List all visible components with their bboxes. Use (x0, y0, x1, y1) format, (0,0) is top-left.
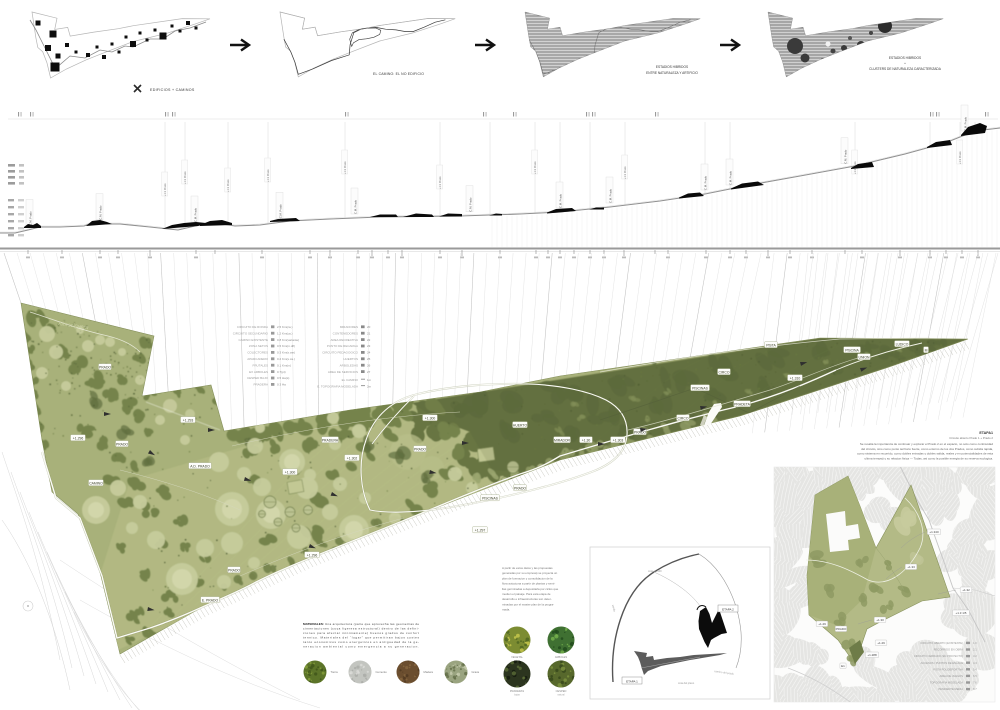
svg-text:+1.3 Prado: +1.3 Prado (183, 171, 187, 184)
svg-text:ZONA SETOS: ZONA SETOS (249, 344, 268, 348)
svg-text:+1.3 Prado: +1.3 Prado (533, 161, 537, 174)
svg-text:PRADO: PRADO (99, 365, 111, 369)
svg-text:ETAPA 2: ETAPA 2 (722, 608, 734, 612)
svg-text:C.M. Prado: C.M. Prado (559, 193, 563, 208)
svg-text:C.M. Prado: C.M. Prado (469, 197, 473, 212)
svg-text:PRADO: PRADO (116, 442, 128, 446)
svg-text:+1.297: +1.297 (475, 528, 486, 532)
svg-text:ACCESOS / PUNTOS DE ENLACE: ACCESOS / PUNTOS DE ENLACE (920, 661, 963, 665)
svg-text:+1.300: +1.300 (425, 416, 436, 420)
svg-text:22: 22 (367, 338, 371, 342)
svg-text:1.0: 1.0 (973, 641, 977, 645)
svg-text:CIRCO: CIRCO (678, 416, 689, 420)
svg-text:llas germinadas a depositarla: llas germinadas a depositarla por ciclos… (502, 587, 559, 591)
svg-text:C.M. Prado: C.M. Prado (729, 170, 733, 185)
svg-text:+1.29: +1.29 (877, 641, 885, 645)
svg-text:20: 20 (367, 325, 371, 329)
svg-text:PRADO: PRADO (836, 627, 847, 631)
svg-text:ARBOLEDAS: ARBOLEDAS (340, 363, 358, 367)
svg-text:E1: E1 (841, 664, 845, 668)
svg-text:7.6: 7.6 (973, 681, 977, 685)
svg-text:ultima terraza) y su relacion: ultima terraza) y su relacion fisica — T… (864, 456, 993, 460)
svg-text:PRADO: PRADO (634, 430, 646, 434)
svg-text:E. TOPOGRAFIA MODELADA: E. TOPOGRAFIA MODELADA (317, 385, 358, 389)
svg-text:Grava: Grava (472, 670, 480, 674)
svg-text:UNION: UNION (859, 355, 870, 359)
svg-text:26: 26 (367, 363, 371, 367)
svg-text:LUDICO: LUDICO (896, 342, 909, 346)
svg-text:1.2 Km(ca.): 1.2 Km(ca.) (277, 331, 293, 335)
svg-text:Tierra: Tierra (331, 670, 339, 674)
svg-text:COLECTORES: COLECTORES (247, 351, 268, 355)
svg-text:PRADERA: PRADERA (322, 438, 339, 442)
svg-text:MIRADOR: MIRADOR (554, 438, 571, 442)
svg-text:ESTADIOS HIBRIDOS: ESTADIOS HIBRIDOS (656, 65, 688, 69)
svg-text:Madera: Madera (424, 670, 434, 674)
svg-text:M: M (925, 348, 928, 352)
svg-text:+1.29: +1.29 (818, 622, 826, 626)
svg-text:+1.3 Prado: +1.3 Prado (163, 183, 167, 196)
svg-text:0.1 Km(m): 0.1 Km(m) (277, 363, 291, 367)
svg-text:A partir de estos datos y las: A partir de estos datos y las propuestas (502, 566, 553, 570)
svg-text:CESPED BAJO: CESPED BAJO (247, 376, 269, 380)
svg-text:mada.: mada. (502, 608, 510, 612)
svg-text:+1.293: +1.293 (183, 418, 194, 422)
svg-text:A.D. PRADO: A.D. PRADO (190, 464, 210, 468)
svg-text:+1.32: +1.32 (962, 588, 970, 592)
svg-text:C.M. Prado: C.M. Prado (704, 175, 708, 190)
svg-text:C.M. Prado: C.M. Prado (844, 149, 848, 164)
svg-text:CAMINO EXISTENTE: CAMINO EXISTENTE (238, 338, 268, 342)
svg-text:PISCINAS: PISCINAS (692, 386, 709, 390)
svg-text:CAMINO: CAMINO (89, 481, 103, 485)
svg-text:MATERIALES:: MATERIALES: (303, 622, 324, 626)
svg-text:RECORRIDO EN OBRA: RECORRIDO EN OBRA (934, 648, 963, 652)
svg-text:CIRCUITO PEDAGOGICO: CIRCUITO PEDAGOGICO (322, 351, 358, 355)
svg-text:ciones para afectar minimam: ciones para afectar minimamente) buenos … (303, 631, 419, 635)
svg-text:CIRCUITO ABIERTO (EXISTENTE): CIRCUITO ABIERTO (EXISTENTE) (920, 641, 963, 645)
svg-text:AREA RECREATIVA: AREA RECREATIVA (330, 338, 358, 342)
svg-text:6.5: 6.5 (973, 674, 977, 678)
svg-text:+1.30: +1.30 (876, 618, 884, 622)
svg-text:+1.3 Prado: +1.3 Prado (958, 151, 962, 164)
svg-text:bajas: bajas (514, 694, 521, 697)
svg-text:PISTA POLIDEPORTIVA: PISTA POLIDEPORTIVA (933, 667, 963, 671)
svg-text:ETAPA1: ETAPA1 (979, 431, 993, 435)
svg-text:CLUSTERS DE NATURALEZA CARACTE: CLUSTERS DE NATURALEZA CARACTERIZADA (869, 67, 942, 71)
svg-text:ENTRE NATURALEZA Y ARTIFICIO: ENTRE NATURALEZA Y ARTIFICIO (646, 71, 698, 75)
svg-text:+1.33: +1.33 (907, 565, 915, 569)
svg-text:+1.296: +1.296 (73, 436, 84, 440)
svg-text:tanto economicos como energ: tanto economicos como energeticos en ant… (303, 640, 419, 644)
svg-text:cimentaciones (cuya ligereza: cimentaciones (cuya ligereza estructural… (303, 627, 419, 631)
svg-text:EX ARBOLES: EX ARBOLES (249, 370, 268, 374)
svg-text:Se resalta la importancia de c: Se resalta la importancia de continuar y… (860, 442, 993, 446)
svg-text:+1.303: +1.303 (613, 438, 624, 442)
svg-text:0.3 Ha: 0.3 Ha (277, 383, 286, 387)
svg-text:3.2: 3.2 (973, 654, 977, 658)
svg-text:ESTADIOS HIBRIDOS: ESTADIOS HIBRIDOS (889, 56, 921, 60)
svg-text:CONTENEDORES: CONTENEDORES (333, 331, 358, 335)
svg-text:0.8 Km(variante): 0.8 Km(variante) (277, 338, 299, 342)
svg-text:EL CAMINO: EL NO EDIFICIO: EL CAMINO: EL NO EDIFICIO (373, 72, 424, 76)
svg-text:PENDIENTE MEDIA: PENDIENTE MEDIA (938, 687, 963, 691)
svg-text:+1.302: +1.302 (347, 456, 358, 460)
svg-text:minadas por el master plan de: minadas por el master plan de la progra- (502, 602, 554, 606)
svg-text:AREA DE SERVICIOS: AREA DE SERVICIOS (328, 370, 358, 374)
svg-text:flora autoctona a partir de pl: flora autoctona a partir de plantas y se… (502, 582, 555, 586)
svg-text:+1.3 Prado: +1.3 Prado (623, 166, 627, 179)
svg-text:+1.340: +1.340 (929, 530, 939, 534)
svg-text:FRUTALES: FRUTALES (253, 363, 268, 367)
svg-text:EL CAMINO: EL CAMINO (342, 378, 359, 382)
svg-text:PRADERA: PRADERA (253, 383, 268, 387)
svg-text:+1.30: +1.30 (582, 438, 591, 442)
svg-text:C.M. Prado: C.M. Prado (194, 207, 198, 222)
svg-text:PRADO: PRADO (514, 486, 526, 490)
svg-text:PISTA: PISTA (766, 343, 776, 347)
svg-text:+1.288: +1.288 (867, 653, 877, 657)
svg-text:0.2 Km(s.ca.): 0.2 Km(s.ca.) (277, 357, 295, 361)
svg-text:ARBOLES: ARBOLES (555, 655, 568, 659)
svg-text:como sistema en recorrido, co: como sistema en recorrido, como dobles e… (857, 452, 993, 456)
svg-text:21: 21 (367, 331, 371, 335)
svg-text:+1.3 Prado: +1.3 Prado (266, 169, 270, 182)
svg-text:1m: 1m (367, 378, 372, 382)
svg-text:medien el paisaje. Para esta e: medien el paisaje. Para esta etapa de (502, 592, 551, 596)
svg-text:cota +1.300: cota +1.300 (648, 569, 662, 573)
svg-text:PRADO: PRADO (414, 447, 426, 451)
svg-text:23: 23 (367, 344, 371, 348)
svg-text:2.1: 2.1 (973, 648, 977, 652)
svg-text:0.5 Ha(s): 0.5 Ha(s) (277, 376, 289, 380)
svg-text:HUERTO: HUERTO (513, 423, 528, 427)
svg-text:+1.300: +1.300 (285, 470, 296, 474)
svg-text:+1.310: +1.310 (790, 376, 801, 380)
svg-text:cota del plano: cota del plano (678, 681, 695, 685)
svg-text:2m: 2m (367, 385, 372, 389)
svg-text:0.3 Km(s.var): 0.3 Km(s.var) (277, 351, 295, 355)
svg-text:8.7: 8.7 (973, 687, 977, 691)
svg-text:CIRCUITO CERRADO (EN PROYECTO): CIRCUITO CERRADO (EN PROYECTO) (914, 654, 963, 658)
svg-text:MIRADORES: MIRADORES (340, 325, 358, 329)
svg-text:CIRCUITO SECUNDARIO: CIRCUITO SECUNDARIO (233, 331, 269, 335)
svg-text:desarrollo e infraestructuras: desarrollo e infraestructuras son deter- (502, 597, 552, 601)
svg-text:Cemento: Cemento (376, 670, 388, 674)
svg-text:+1.3 Prado: +1.3 Prado (343, 161, 347, 174)
svg-text:4.3: 4.3 (973, 661, 977, 665)
svg-text:Circuito abierto Prado 1 + Pra: Circuito abierto Prado 1 + Prado 2 (949, 436, 993, 440)
svg-text:generadas por su empresa) se p: generadas por su empresa) se proyecta un (502, 571, 558, 575)
svg-text:25: 25 (367, 357, 371, 361)
svg-text:C.M. Prado: C.M. Prado (279, 204, 283, 219)
svg-text:del circuito, sino como punto: del circuito, sino como punto territorio… (861, 447, 993, 451)
svg-text:PRADO: PRADO (228, 568, 240, 572)
svg-text:2.5 Km(ca.): 2.5 Km(ca.) (277, 325, 293, 329)
svg-text:E. PRADO: E. PRADO (202, 598, 219, 602)
svg-text:PRADETA: PRADETA (734, 402, 751, 406)
svg-text:PRADERAS: PRADERAS (510, 689, 525, 693)
svg-text:C.M. Prado: C.M. Prado (99, 205, 103, 220)
svg-text:C.M. Prado: C.M. Prado (609, 188, 613, 203)
svg-text:C.M. Prado: C.M. Prado (354, 199, 358, 214)
svg-text:CESPED: CESPED (556, 689, 567, 693)
svg-text:APARCADERO: APARCADERO (247, 357, 268, 361)
svg-text:TOPOGRAFIA MODELADA: TOPOGRAFIA MODELADA (930, 681, 963, 685)
svg-text:+1.3 Prado: +1.3 Prado (438, 176, 442, 189)
svg-text:PISCINAS: PISCINAS (482, 496, 499, 500)
svg-text:C.M. Prado: C.M. Prado (29, 211, 33, 226)
svg-text:termico. Materiales del “lu: termico. Materiales del “lugar” que perm… (303, 636, 419, 640)
svg-text:plan de formacion y consolidac: plan de formacion y consolidacion de la (502, 576, 553, 580)
svg-text:PUNTO DE RECARGA: PUNTO DE RECARGA (327, 344, 358, 348)
svg-text:+: + (904, 61, 906, 65)
svg-text:+1.296: +1.296 (307, 553, 318, 557)
svg-text:0.5 Km(m.dif): 0.5 Km(m.dif) (277, 344, 295, 348)
svg-text:0.7(pt): 0.7(pt) (277, 370, 286, 374)
svg-text:AREA DE JUEGOS: AREA DE JUEGOS (940, 674, 964, 678)
svg-text:PISCINA: PISCINA (845, 348, 859, 352)
svg-text:5.4: 5.4 (973, 667, 977, 671)
svg-text:ETAPA 1: ETAPA 1 (626, 680, 638, 684)
svg-text:neracion ambiental como eme: neracion ambiental como emergencia a su … (303, 645, 419, 649)
svg-text:+1.3 Prado: +1.3 Prado (226, 179, 230, 192)
svg-text:Una arquitectura (parte que: Una arquitectura (parte que aprovecha la… (325, 622, 419, 626)
svg-text:CIRCUITO DE RONDA: CIRCUITO DE RONDA (237, 325, 268, 329)
svg-text:27: 27 (367, 370, 371, 374)
svg-text:HUERTOS: HUERTOS (343, 357, 358, 361)
svg-text:natural: natural (557, 694, 565, 697)
svg-text:24: 24 (367, 351, 371, 355)
svg-text:CIRCO: CIRCO (719, 370, 730, 374)
svg-text:EDIFICIOS + CAMINOS: EDIFICIOS + CAMINOS (150, 88, 195, 92)
svg-text:+1.3 1/5: +1.3 1/5 (956, 611, 967, 615)
svg-text:VEGETAL: VEGETAL (511, 655, 523, 659)
